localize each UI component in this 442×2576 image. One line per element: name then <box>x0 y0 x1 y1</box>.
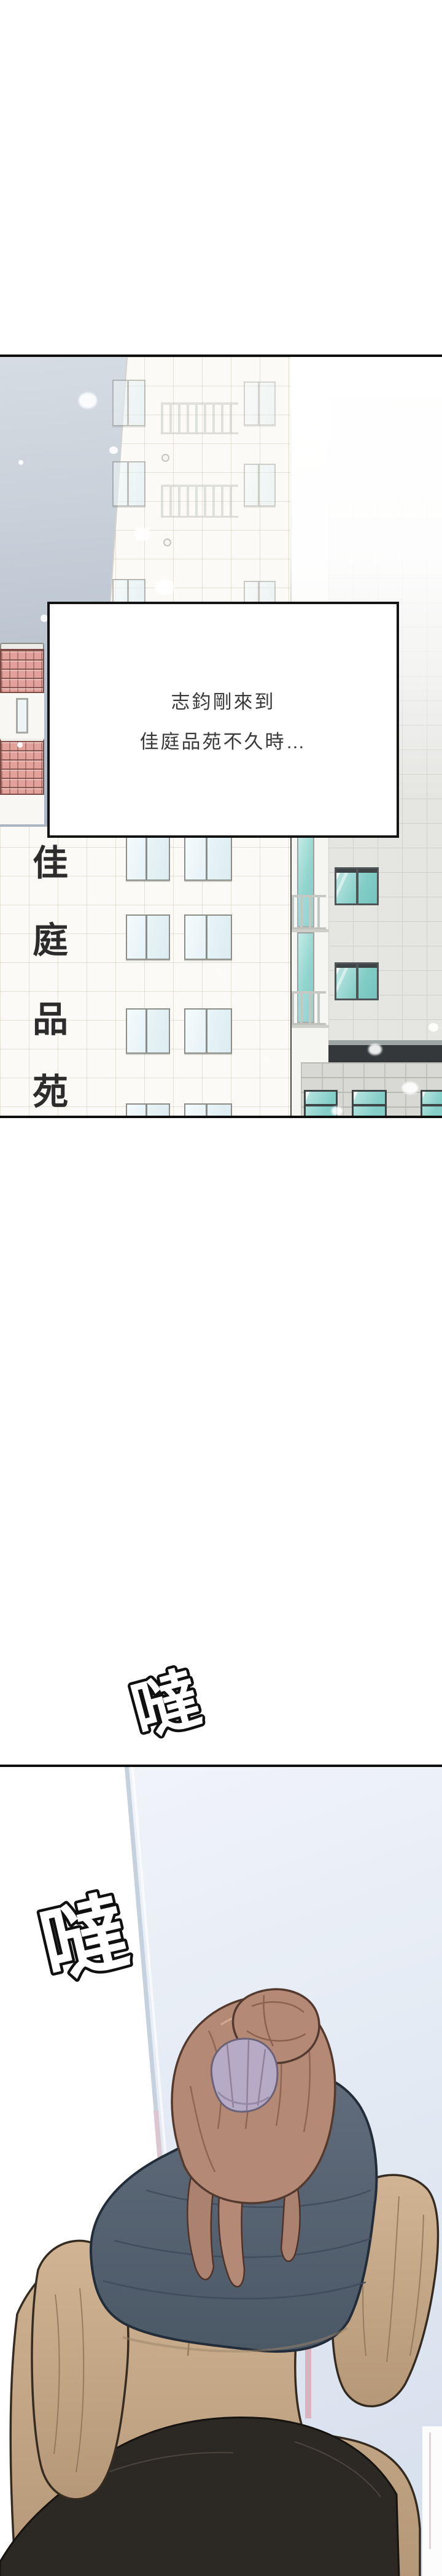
window-mullion <box>258 383 260 424</box>
wall-strip-pink-line <box>429 2432 431 2549</box>
window <box>112 380 145 426</box>
window-mullion <box>145 837 147 880</box>
window <box>244 464 276 507</box>
shop-window-split <box>306 1104 336 1106</box>
building-sign-char: 苑 <box>28 1073 72 1111</box>
shop-window-split <box>354 1104 385 1106</box>
window-mullion <box>145 1105 147 1117</box>
snowflake <box>18 460 23 465</box>
snowflake <box>216 970 222 976</box>
narration-line-1: 志鈞剛來到 <box>171 686 276 714</box>
window <box>112 461 145 507</box>
house-window <box>16 698 28 734</box>
snowflake <box>155 579 174 595</box>
teal-window <box>335 962 379 1000</box>
snowflake <box>402 1082 418 1094</box>
house-wall-lower <box>0 795 44 824</box>
shop-window-split <box>422 1104 442 1106</box>
window-mullion <box>145 916 147 959</box>
window-mullion <box>127 381 129 425</box>
building-sign-char: 佳 <box>28 845 72 883</box>
window-mullion <box>356 964 359 999</box>
window <box>126 1103 170 1117</box>
teal-window <box>335 867 379 905</box>
window <box>184 1103 232 1117</box>
window <box>126 1008 170 1054</box>
storefront-band <box>328 1040 442 1062</box>
scrunchie <box>211 2039 277 2112</box>
storefront-band-top <box>328 1040 442 1045</box>
sfx-footstep-1-text: 噠 <box>124 1660 207 1749</box>
snowflake <box>17 742 23 748</box>
wall-vent <box>163 539 171 546</box>
snowflake <box>428 1023 438 1032</box>
balcony-railing <box>161 402 238 434</box>
window <box>126 914 170 960</box>
red-roof-house <box>0 643 44 824</box>
woman-figure <box>0 1767 442 2576</box>
sfx-footstep-1: 噠 <box>114 1653 221 1763</box>
balcony-railing <box>292 895 326 929</box>
snowflake <box>331 1106 343 1116</box>
narration-line-2: 佳庭品苑不久時… <box>140 726 307 754</box>
balcony-slab <box>292 1025 328 1028</box>
snowflake <box>79 393 97 408</box>
window <box>244 381 276 426</box>
window-mullion <box>258 465 260 505</box>
panel-building-exterior: 佳 庭 品 苑 志鈞剛來到 佳庭品苑不久時… <box>0 355 442 1118</box>
window-mullion <box>206 1010 207 1052</box>
snowflake <box>109 447 118 454</box>
window <box>184 1008 232 1054</box>
shop-window <box>352 1090 387 1117</box>
window <box>184 914 232 960</box>
roof-tiles-lower <box>0 738 44 795</box>
balcony-railing <box>292 991 326 1025</box>
window-mullion <box>356 869 359 903</box>
window-mullion <box>206 1105 207 1117</box>
narration-box: 志鈞剛來到 佳庭品苑不久時… <box>47 602 399 838</box>
window <box>184 835 232 881</box>
window-mullion <box>145 1010 147 1052</box>
bright-wall-strip <box>422 2426 442 2576</box>
window <box>126 835 170 881</box>
snowflake <box>264 1056 269 1062</box>
wall-vent <box>161 454 169 462</box>
shop-window <box>421 1090 442 1117</box>
comic-page: 佳 庭 品 苑 志鈞剛來到 佳庭品苑不久時… 噠 噠 <box>0 0 442 2576</box>
snowflake <box>134 527 151 541</box>
window-mullion <box>206 837 207 880</box>
building-sign-char: 庭 <box>28 922 72 960</box>
balcony-railing <box>161 485 238 518</box>
window-mullion <box>206 916 207 959</box>
panel-hallway-figure: 噠 <box>0 1765 442 2576</box>
window-mullion <box>127 462 129 505</box>
roof-tiles-upper <box>0 649 44 693</box>
window-mullion <box>258 582 260 604</box>
snowflake <box>368 1044 382 1055</box>
building-sign-char: 品 <box>28 1001 72 1039</box>
